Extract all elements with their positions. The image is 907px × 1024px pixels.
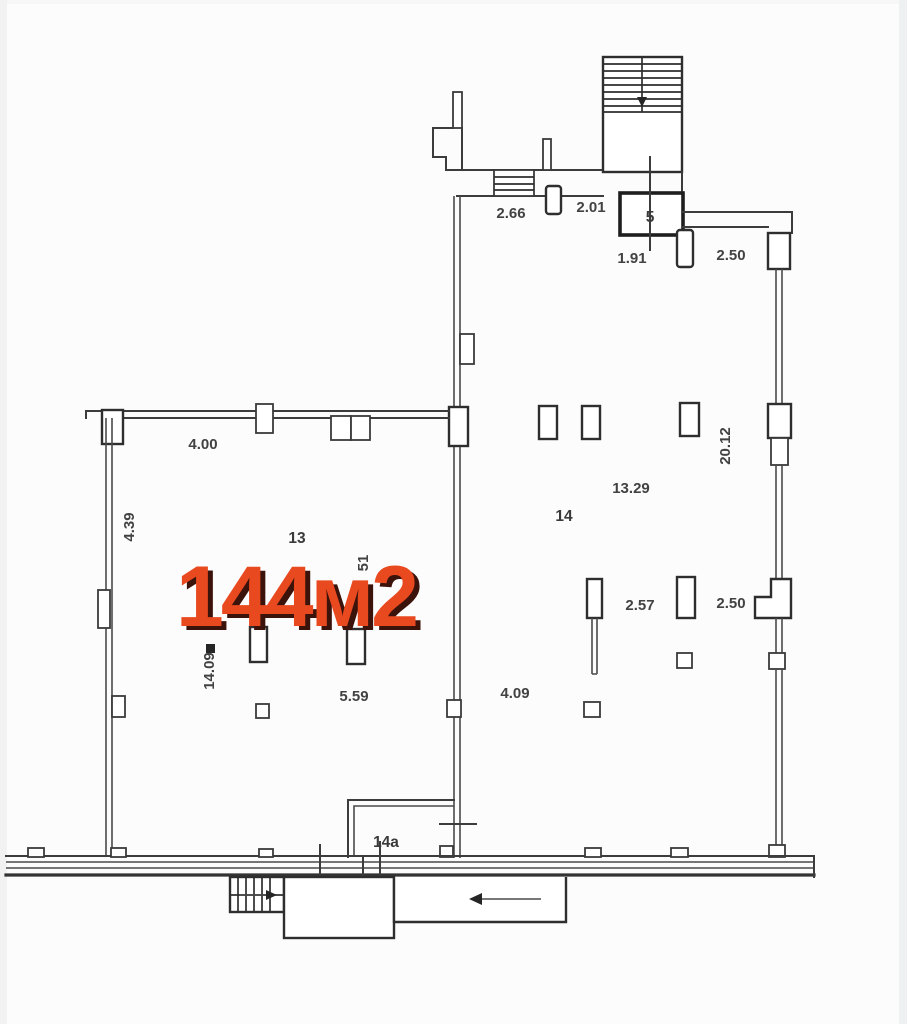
- dim-1-91: 1.91: [617, 250, 646, 267]
- room-14a-walls: [348, 800, 454, 857]
- dim-4-39: 4.39: [121, 512, 138, 541]
- upper-stairwell: [603, 57, 682, 212]
- dim-5-59: 5.59: [339, 688, 368, 705]
- area-label: 144м2 144м2: [176, 549, 421, 649]
- top-left-duct: [433, 92, 462, 170]
- room-label-14: 14: [555, 508, 573, 525]
- room-label-13: 13: [288, 530, 306, 547]
- dim-2-01: 2.01: [576, 199, 605, 216]
- room-label-5: 5: [646, 209, 655, 226]
- floor-plan-canvas: 2.66 2.01 1.91 2.50 4.00 4.39 51 14.09 5…: [0, 0, 907, 1024]
- dim-2-57: 2.57: [625, 597, 654, 614]
- floor-plan-page: 2.66 2.01 1.91 2.50 4.00 4.39 51 14.09 5…: [0, 0, 907, 1024]
- dim-13-29: 13.29: [612, 480, 650, 497]
- room-label-14a: 14а: [373, 834, 399, 851]
- dim-4-09: 4.09: [500, 685, 529, 702]
- dim-2-66: 2.66: [496, 205, 525, 222]
- dim-2-50-mid: 2.50: [716, 595, 745, 612]
- dim-4-00: 4.00: [188, 436, 217, 453]
- lower-stairs: [230, 877, 284, 912]
- dim-14-09: 14.09: [201, 652, 218, 690]
- room-labels: 13 14 5 14а: [288, 209, 654, 851]
- middle-wall: [440, 196, 476, 858]
- dim-2-50-top: 2.50: [716, 247, 745, 264]
- dim-20-12: 20.12: [717, 427, 734, 465]
- entrance-boxes: [284, 877, 566, 938]
- area-label-text: 144м2: [176, 549, 416, 645]
- right-wall: [755, 269, 791, 857]
- room-14-columns: [539, 403, 699, 717]
